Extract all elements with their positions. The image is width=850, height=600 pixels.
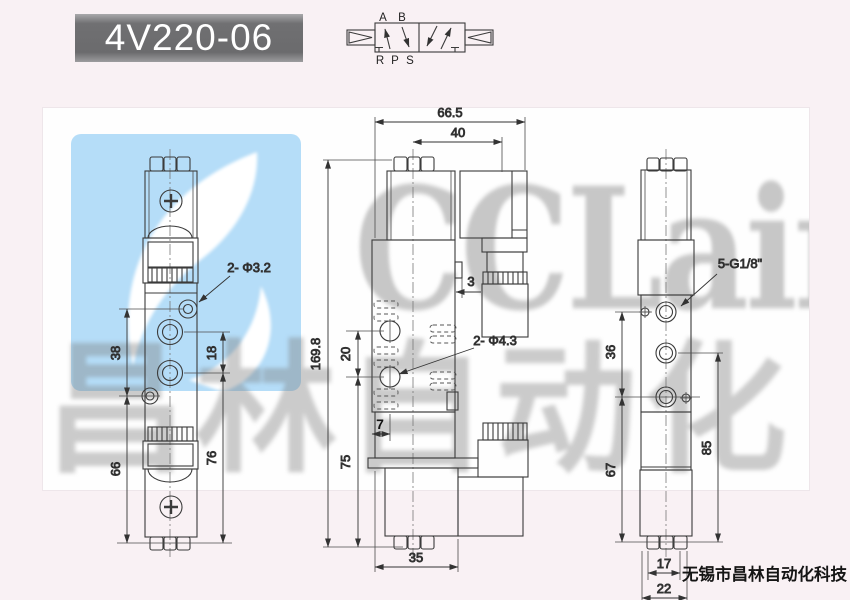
dim-75: 75 — [338, 455, 353, 469]
dim-40: 40 — [451, 125, 465, 140]
dim-hole-3-2: 2- Φ3.2 — [227, 260, 271, 275]
dim-3: 3 — [467, 274, 474, 289]
page: CCLair 昌林自动化 4V220-06 — [0, 0, 850, 600]
dim-66-5: 66.5 — [437, 105, 462, 120]
schematic-symbol: A B R P S — [347, 12, 493, 67]
company-name: 无锡市昌林自动化科技 — [682, 561, 847, 585]
dim-36: 36 — [603, 345, 618, 359]
port-label-r: R — [376, 55, 384, 67]
port-label-p: P — [391, 55, 399, 67]
dim-7: 7 — [376, 416, 384, 432]
dim-22: 22 — [657, 581, 671, 596]
right-view: 36 67 85 17 22 5-G1/8" — [603, 149, 763, 600]
port-label-s: S — [406, 55, 414, 67]
technical-drawing: A B R P S — [0, 0, 850, 600]
port-label-a: A — [379, 12, 387, 24]
dim-35: 35 — [409, 550, 423, 565]
dim-port-g18: 5-G1/8" — [718, 256, 763, 271]
dim-67: 67 — [603, 463, 618, 477]
dim-169-8: 169.8 — [308, 338, 323, 371]
dim-38: 38 — [108, 346, 123, 360]
dim-76: 76 — [204, 451, 219, 465]
front-view: 66.5 40 169.8 20 75 7 3 35 2- Φ4.3 — [308, 105, 528, 572]
dim-17: 17 — [657, 556, 671, 571]
dim-66: 66 — [108, 462, 123, 476]
dim-hole-4-3: 2- Φ4.3 — [473, 333, 517, 348]
dim-85: 85 — [699, 441, 714, 455]
dim-18: 18 — [204, 346, 219, 360]
port-label-b: B — [398, 12, 406, 24]
left-view: 38 66 18 76 2- Φ3.2 — [108, 149, 271, 557]
dim-20: 20 — [338, 347, 353, 361]
